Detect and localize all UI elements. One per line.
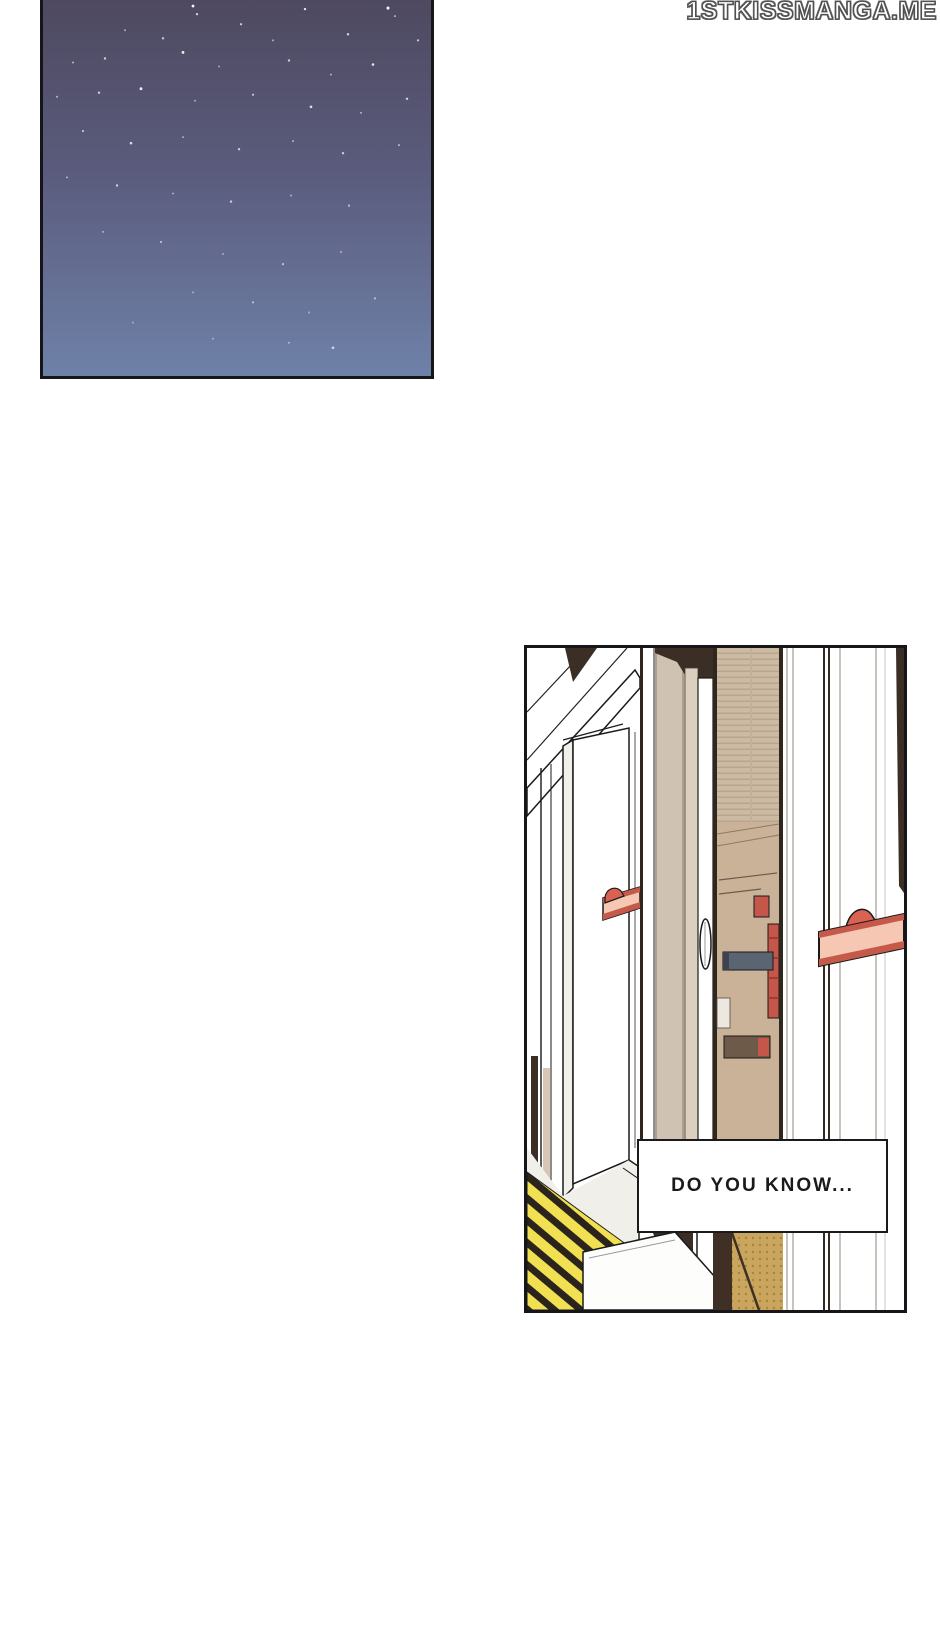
speech-box: DO YOU KNOW...	[637, 1139, 888, 1233]
stars-graphic	[43, 0, 431, 376]
site-watermark: 1STKISSMANGA.ME	[686, 0, 937, 26]
train-door-panel: DO YOU KNOW...	[524, 645, 907, 1313]
speech-text: DO YOU KNOW...	[671, 1175, 854, 1197]
manga-page: 1STKISSMANGA.ME	[0, 0, 940, 1649]
night-sky-panel	[40, 0, 434, 379]
